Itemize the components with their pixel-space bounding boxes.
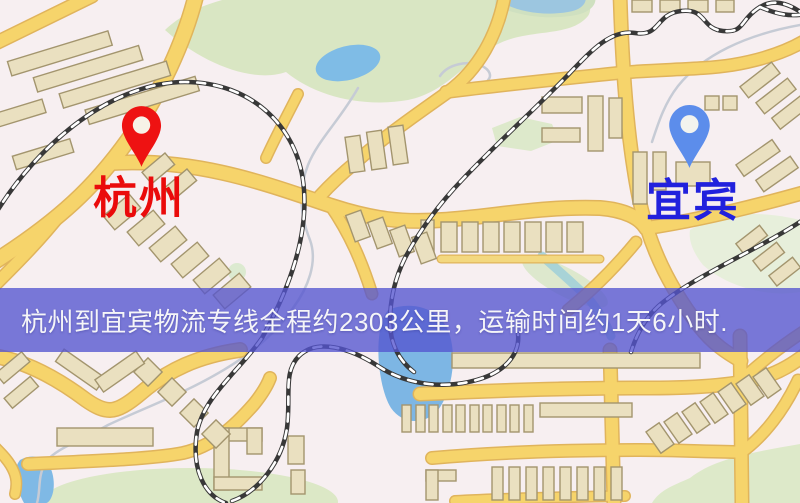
route-info-text: 杭州到宜宾物流专线全程约2303公里，运输时间约1天6小时.	[21, 302, 728, 339]
destination-city-label: 宜宾	[638, 178, 748, 223]
destination-pin-icon	[667, 103, 712, 170]
route-info-banner: 杭州到宜宾物流专线全程约2303公里，运输时间约1天6小时.	[0, 288, 800, 352]
origin-pin-icon	[119, 105, 164, 168]
map-canvas: 杭州 宜宾 杭州到宜宾物流专线全程约2303公里，运输时间约1天6小时.	[0, 0, 800, 503]
map-background	[0, 0, 800, 503]
origin-city-label: 杭州	[84, 177, 194, 221]
